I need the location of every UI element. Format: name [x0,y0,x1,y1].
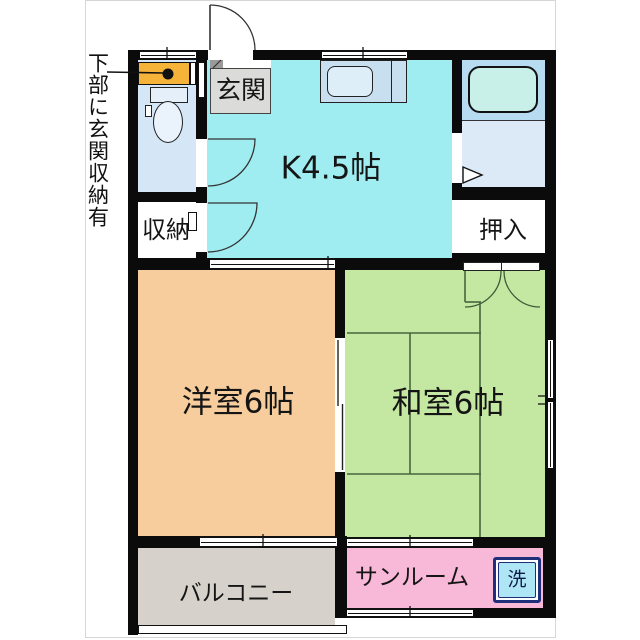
wall-oshiire-jamb-left [452,253,463,270]
window-kitchen [322,50,407,60]
annotation-text: 下部に玄関収納有 [87,52,108,228]
window-japanese-sunroom [347,537,473,548]
wall-balcony-sunroom [335,536,347,618]
counter-divider [391,60,392,103]
storage-door-opening [196,203,207,252]
balcony-label: バルコニー [179,583,294,606]
window-sunroom-outer [347,608,473,618]
sunroom-label: サンルーム [355,567,469,590]
storage-label: 収納 [142,218,190,242]
wall-oshiire-bottom [452,253,553,262]
wall-washroom-oshiire [452,187,553,200]
washroom [462,120,545,187]
sliding-door-western-japanese [335,338,345,472]
western-room-label: 洋室6帖 [182,388,295,419]
wall-sunroom-right [543,537,556,618]
window-japanese-right-lower [546,402,555,468]
wall-toilet-storage [128,192,207,202]
floorplan-image: 下部に玄関収納有 玄関 K4.5帖 収納 押入 洋室6帖 和室6帖 バルコニー … [0,0,640,640]
oshiire-label: 押入 [479,218,527,242]
japanese-room-label: 和室6帖 [392,389,505,420]
wall-kitchen-bottom [335,258,463,270]
bathtub [468,66,538,113]
toilet-door-opening [196,139,207,187]
wall-sunroom-bottom [473,608,553,618]
wall-under-storage [128,258,210,270]
wall-west-bottom [128,536,200,548]
entrance-storage-cabinet [138,62,190,85]
entrance-label: 玄関 [216,78,266,103]
window-western-balcony [200,536,337,548]
washer-label: 洗 [507,571,526,590]
toilet-bowl [153,101,183,143]
balcony-railing [138,625,347,634]
wall-hollow-slot [198,62,205,98]
sliding-door-kitchen-western [210,258,335,270]
entrance-doorway [208,50,253,60]
wall-oshiire-jamb-right [540,253,553,270]
toilet-flush-handle [145,105,152,117]
oshiire-door-panel-right [501,262,540,271]
window-toilet [140,50,196,60]
wall-right [545,50,556,618]
oshiire-door-panel-left [463,262,502,271]
window-separator [546,398,555,402]
kitchen-sink [327,66,373,97]
window-japanese-right-upper [546,340,555,398]
kitchen-label: K4.5帖 [281,154,382,185]
washroom-door-opening [452,133,462,183]
